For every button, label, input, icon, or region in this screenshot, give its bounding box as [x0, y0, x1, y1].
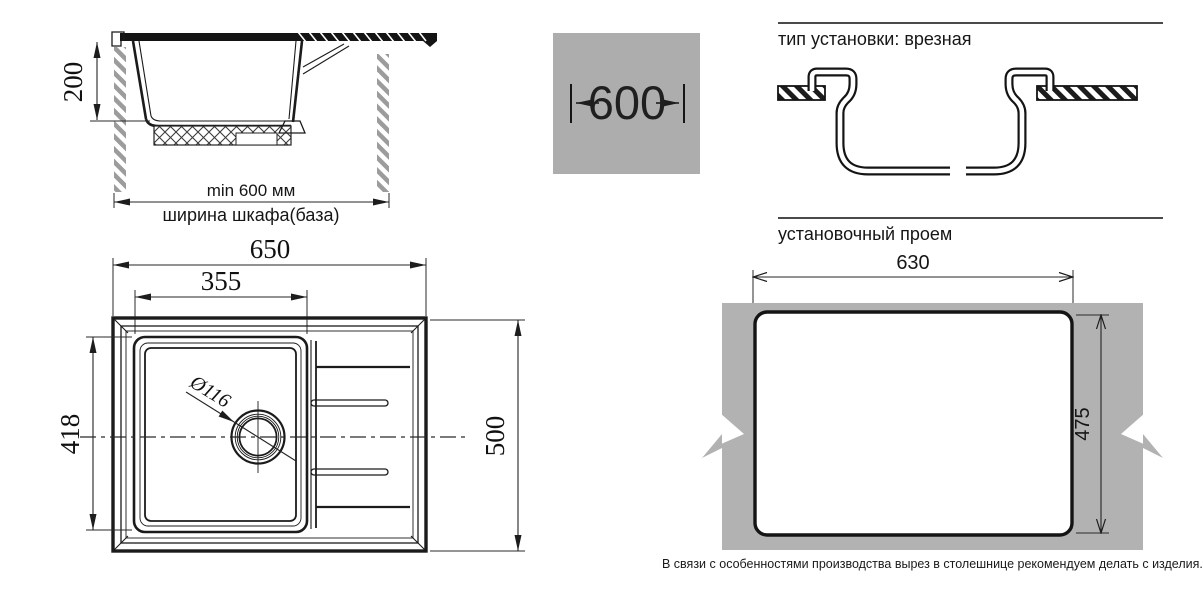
- cabinet-width-dimension: min 600 мм ширина шкафа(база): [114, 181, 389, 225]
- sink-top-view: 650 355: [55, 234, 525, 551]
- rim-gusset-2: [303, 46, 349, 74]
- depth-dim-value: 200: [58, 62, 88, 103]
- cutout-height-value: 475: [1072, 407, 1094, 440]
- drainboard-groove-bottom: [311, 469, 388, 475]
- width-badge-value: 600: [588, 76, 666, 129]
- overall-width-dimension: 650: [113, 234, 426, 316]
- drainboard-groove-top: [311, 400, 388, 406]
- countertop-edge-left: [778, 86, 825, 100]
- cabinet-width-label: ширина шкафа(база): [162, 205, 339, 225]
- bowl-depth-value: 418: [55, 414, 85, 455]
- overall-depth-value: 500: [480, 416, 510, 457]
- overall-width-value: 650: [250, 234, 291, 264]
- drainboard: [311, 340, 410, 529]
- installation-type-title: тип установки: врезная: [778, 29, 971, 49]
- rim-profile-left: [812, 72, 950, 171]
- bowl-bottom: [146, 119, 291, 126]
- bowl-width-value: 355: [201, 266, 242, 296]
- cabinet-section-view: 200 min 600 мм ширина шкафа(база): [58, 32, 437, 225]
- width-badge: 600: [553, 33, 700, 174]
- installation-type-view: тип установки: врезная: [778, 23, 1163, 171]
- rim-gusset: [303, 44, 344, 67]
- technical-drawing-canvas: 200 min 600 мм ширина шкафа(база) 600 ти…: [0, 0, 1203, 606]
- cutout-width-value: 630: [896, 252, 929, 274]
- production-note: В связи с особенностями производства выр…: [662, 557, 1203, 571]
- bowl-wall-right: [293, 41, 302, 122]
- cutout-title: установочный проем: [778, 224, 952, 244]
- cabinet-wall-right: [377, 54, 389, 192]
- sink-installation-drawing: 200 min 600 мм ширина шкафа(база) 600 ти…: [0, 0, 1203, 606]
- bowl-wall-left-inner: [139, 41, 151, 116]
- bowl-bottom-inner: [151, 116, 288, 121]
- cabinet-wall-left: [114, 47, 126, 192]
- bowl-width-dimension: 355: [135, 266, 307, 334]
- cutout-opening: [755, 312, 1072, 535]
- drain-boss: [236, 133, 277, 145]
- sink-outline: [113, 318, 426, 551]
- cutout-view: установочный проем 630 475 В связи с осо…: [662, 218, 1203, 571]
- min-width-label: min 600 мм: [207, 181, 296, 200]
- bowl-wall-left: [133, 41, 146, 119]
- overall-depth-dimension: 500: [430, 320, 525, 551]
